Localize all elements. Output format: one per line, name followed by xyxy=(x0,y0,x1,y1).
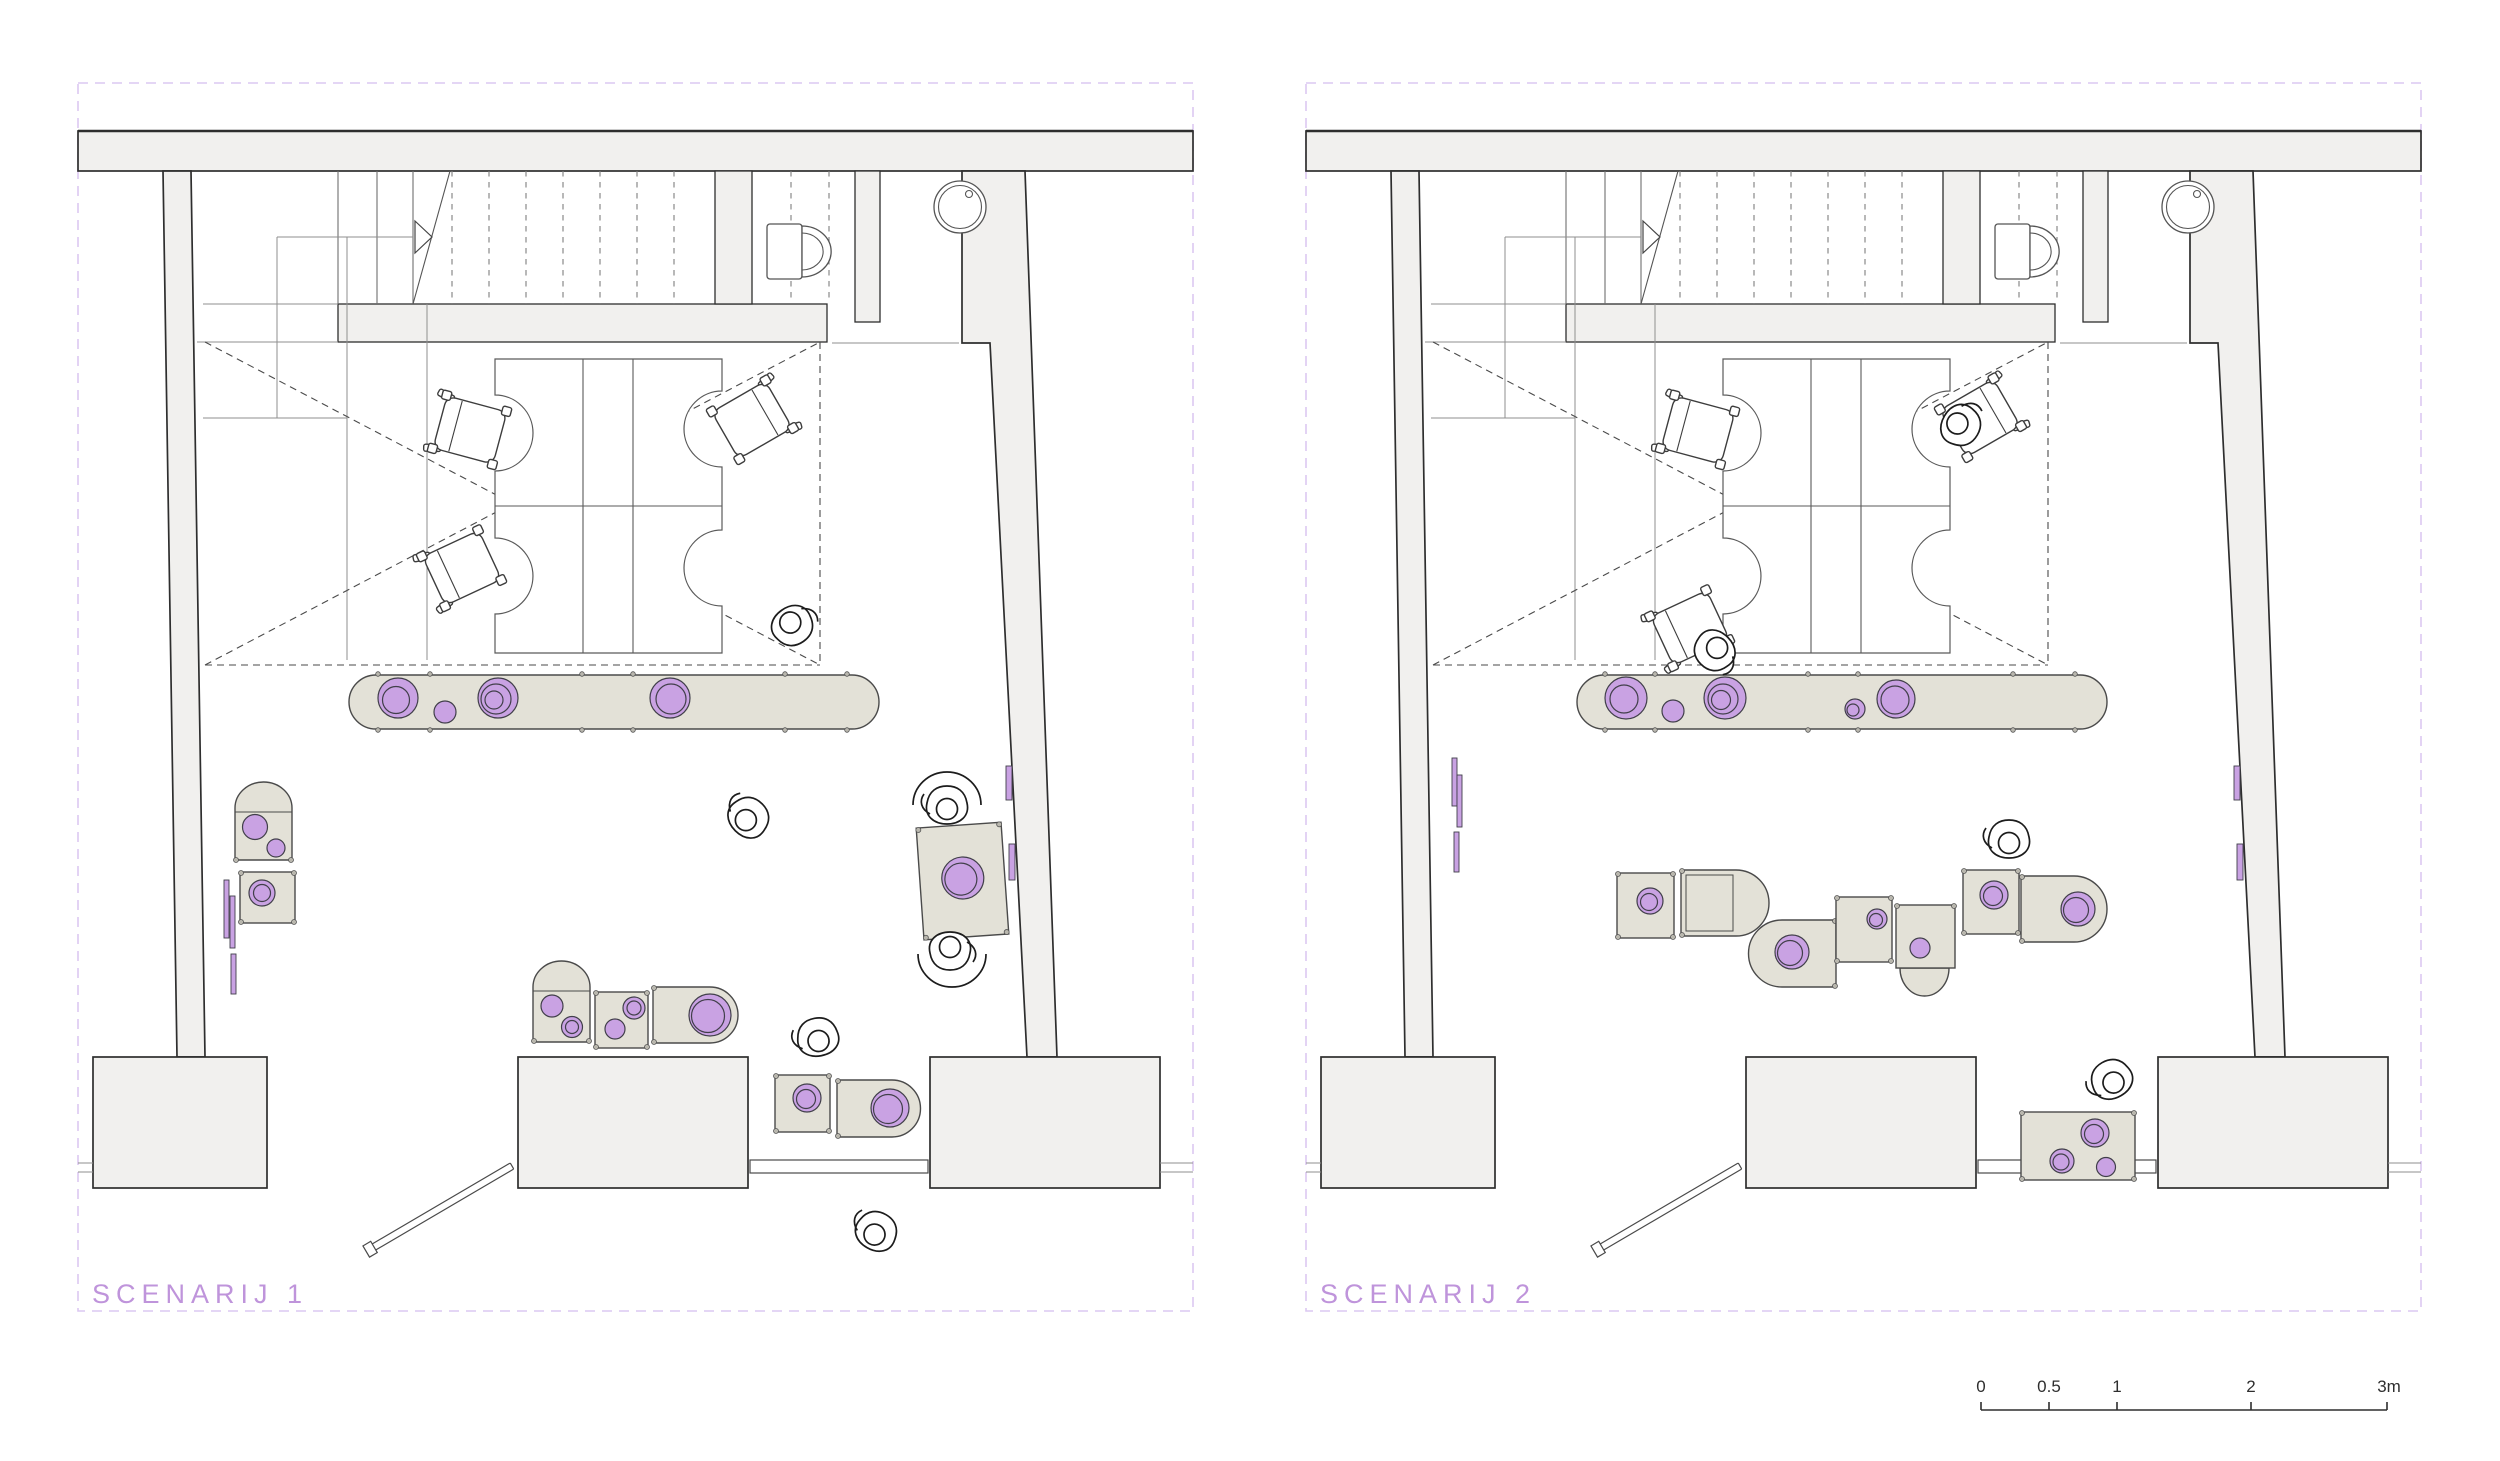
wall-panel xyxy=(1009,844,1015,880)
scenario-1-plan: SCENARIJ 1 xyxy=(78,83,1193,1311)
wall-panel xyxy=(1457,775,1462,827)
scenario-title: SCENARIJ 1 xyxy=(92,1279,308,1309)
play-mat xyxy=(1895,904,1957,997)
person-icon xyxy=(845,1202,904,1258)
play-mat xyxy=(1680,869,1770,938)
wall-panel xyxy=(1454,832,1459,872)
play-mat xyxy=(234,782,294,863)
play-mat xyxy=(774,1074,832,1134)
play-mat xyxy=(1616,872,1676,940)
scale-tick-label: 0.5 xyxy=(2037,1377,2061,1396)
entrance-door xyxy=(1591,1160,1743,1257)
reading-bench xyxy=(1577,672,2107,733)
cushion xyxy=(1704,677,1746,719)
wall-panel xyxy=(2237,844,2243,880)
play-mat xyxy=(652,986,739,1045)
play-mat xyxy=(594,991,650,1050)
kids-table xyxy=(916,822,1010,941)
play-mat xyxy=(532,961,592,1043)
wall-panel xyxy=(1452,758,1457,806)
play-mat xyxy=(2020,875,2108,944)
floor-plan-sheet: SCENARIJ 1 xyxy=(0,0,2500,1461)
play-mat xyxy=(1962,869,2021,936)
scale-tick-label: 0 xyxy=(1976,1377,1985,1396)
office-chair xyxy=(422,388,512,470)
scale-tick-label: 3m xyxy=(2377,1377,2401,1396)
wall-panel xyxy=(231,954,236,994)
play-mat xyxy=(1748,919,1837,989)
person-icon xyxy=(789,1015,841,1060)
office-chair xyxy=(411,524,507,615)
scenario-2-plan: SCENARIJ 2 xyxy=(1306,83,2421,1311)
wall-panel xyxy=(2234,766,2240,800)
scale-tick-label: 2 xyxy=(2246,1377,2255,1396)
cushion xyxy=(434,701,456,723)
play-mat xyxy=(1835,896,1894,964)
wall-panel xyxy=(1006,766,1012,800)
scale-tick-label: 1 xyxy=(2112,1377,2121,1396)
play-mat xyxy=(2020,1111,2137,1182)
person-icon xyxy=(929,932,975,970)
cushion xyxy=(1662,700,1684,722)
wall-panel xyxy=(224,880,229,938)
reading-bench xyxy=(349,672,879,733)
entrance-door xyxy=(363,1160,515,1257)
cushion xyxy=(378,678,418,718)
person-icon xyxy=(765,596,825,654)
scenario-title: SCENARIJ 2 xyxy=(1320,1279,1536,1309)
person-icon xyxy=(2080,1052,2139,1108)
scale-bar: 0 0.5 1 2 3m xyxy=(1976,1377,2401,1410)
plan-canvas: SCENARIJ 1 xyxy=(0,0,2500,1461)
wall-panel xyxy=(230,896,235,948)
play-mat xyxy=(836,1079,921,1139)
person-icon xyxy=(717,786,777,846)
person-icon xyxy=(921,786,967,824)
play-mat xyxy=(239,871,297,925)
office-chair xyxy=(1650,388,1740,470)
person-icon xyxy=(1983,820,2029,858)
